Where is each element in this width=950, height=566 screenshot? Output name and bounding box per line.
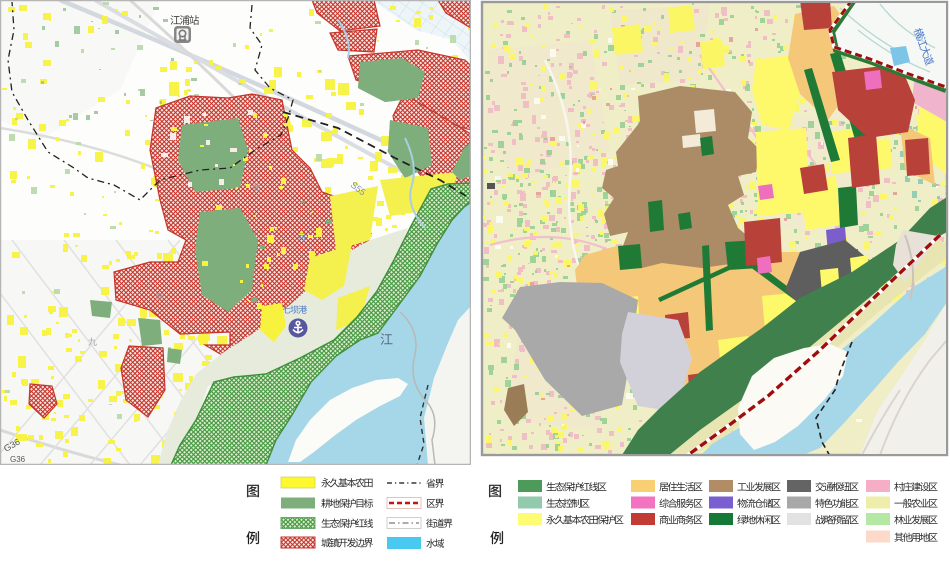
svg-text:G36: G36 [10,455,26,464]
